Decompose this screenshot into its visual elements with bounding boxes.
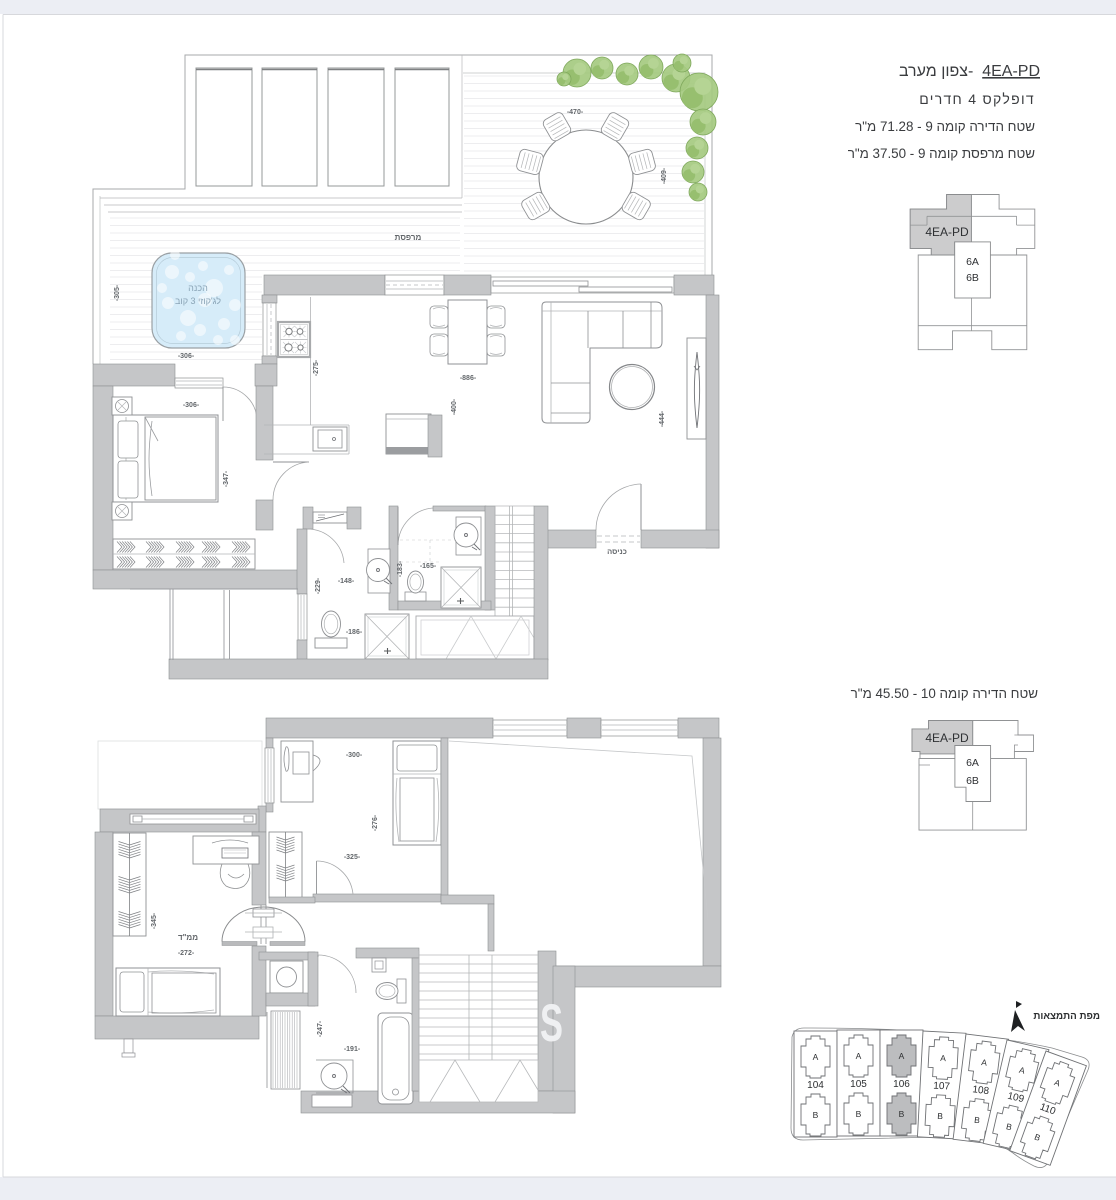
svg-text:-400-: -400- [451, 398, 458, 415]
svg-text:-886-: -886- [460, 375, 477, 382]
svg-text:דופלקס 4 חדרים: דופלקס 4 חדרים [919, 91, 1035, 107]
svg-text:-306-: -306- [183, 402, 200, 409]
svg-text:-191-: -191- [344, 1046, 361, 1053]
svg-text:6A: 6A [966, 256, 979, 268]
svg-text:שטח מרפסת קומה 9 - 37.50 מ"ר: שטח מרפסת קומה 9 - 37.50 מ"ר [848, 146, 1036, 161]
svg-text:105: 105 [850, 1079, 867, 1090]
svg-text:כניסה: כניסה [607, 547, 627, 556]
svg-text:B: B [856, 1109, 862, 1119]
svg-text:-306-: -306- [178, 353, 195, 360]
svg-text:-325-: -325- [344, 854, 361, 861]
svg-text:ממ"ד: ממ"ד [178, 933, 198, 942]
svg-text:6B: 6B [966, 775, 979, 787]
svg-text:שטח הדירה קומה 10 - 45.50 מ"ר: שטח הדירה קומה 10 - 45.50 מ"ר [851, 686, 1039, 701]
svg-text:4EA-PD: 4EA-PD [925, 225, 969, 239]
svg-text:-347-: -347- [223, 470, 230, 487]
svg-text:S: S [540, 994, 563, 1053]
svg-text:-305-: -305- [114, 284, 121, 301]
svg-text:4EA-PD -צפון מערב: 4EA-PD -צפון מערב [899, 63, 1040, 80]
svg-text:B: B [899, 1109, 905, 1119]
svg-text:הכנה: הכנה [188, 283, 208, 293]
svg-text:6B: 6B [966, 272, 979, 284]
svg-text:106: 106 [893, 1079, 910, 1090]
svg-text:לג'קוזי 3 קוב: לג'קוזי 3 קוב [175, 296, 221, 306]
svg-text:-186-: -186- [346, 629, 363, 636]
svg-text:A: A [813, 1052, 819, 1062]
svg-text:-183-: -183- [397, 560, 404, 577]
svg-text:4EA-PD: 4EA-PD [925, 731, 969, 745]
svg-text:-444-: -444- [659, 410, 666, 427]
svg-text:-229-: -229- [315, 577, 322, 594]
svg-text:-272-: -272- [178, 950, 195, 957]
svg-text:A: A [899, 1051, 905, 1061]
svg-text:-247-: -247- [317, 1020, 324, 1037]
svg-text:-148-: -148- [338, 578, 355, 585]
svg-text:-275-: -275- [313, 359, 320, 376]
svg-text:B: B [813, 1110, 819, 1120]
svg-text:-165-: -165- [420, 563, 437, 570]
svg-text:מפת התמצאות: מפת התמצאות [1033, 1011, 1100, 1022]
svg-text:6A: 6A [966, 757, 979, 769]
svg-text:B: B [937, 1111, 944, 1121]
svg-text:מרפסת: מרפסת [395, 233, 422, 242]
svg-text:A: A [856, 1051, 862, 1061]
svg-text:107: 107 [933, 1081, 951, 1093]
svg-text:A: A [940, 1053, 947, 1063]
svg-text:-470-: -470- [567, 109, 584, 116]
svg-text:-409-: -409- [661, 167, 668, 184]
svg-text:-276-: -276- [372, 814, 379, 831]
svg-text:-345-: -345- [151, 912, 158, 929]
svg-text:104: 104 [807, 1080, 824, 1091]
svg-text:-300-: -300- [346, 752, 363, 759]
svg-text:108: 108 [972, 1084, 990, 1097]
svg-text:שטח הדירה קומה 9 - 71.28 מ"ר: שטח הדירה קומה 9 - 71.28 מ"ר [855, 119, 1035, 134]
